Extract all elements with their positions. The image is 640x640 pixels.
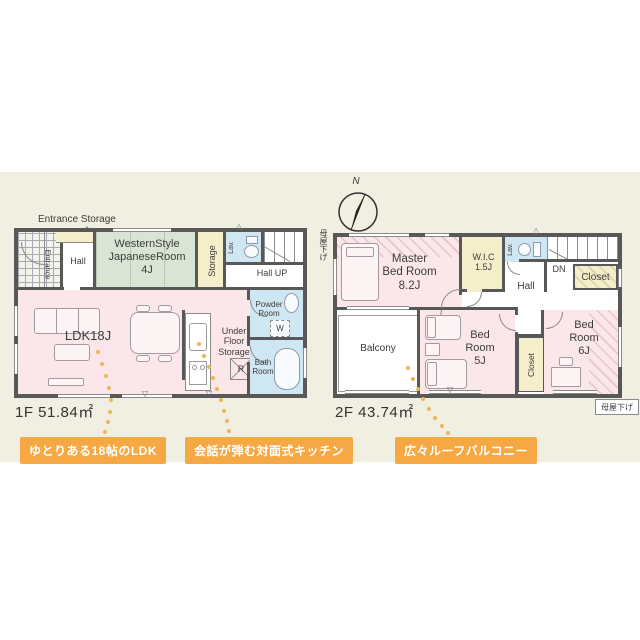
desk-icon bbox=[425, 343, 440, 356]
connector-dot bbox=[104, 374, 108, 378]
connector-dot bbox=[109, 398, 113, 402]
japanese-room-label: WesternStyle JapaneseRoom 4J bbox=[100, 238, 194, 276]
connector-dot bbox=[416, 387, 420, 391]
wic-line2: 1.5J bbox=[464, 262, 503, 272]
window bbox=[14, 306, 18, 336]
window bbox=[113, 228, 171, 232]
coffee-table-icon bbox=[54, 344, 90, 361]
bed6-line3: 6J bbox=[559, 345, 609, 358]
dn-label: DN bbox=[548, 264, 570, 274]
annotation-balcony: 広々ルーフバルコニー bbox=[395, 437, 537, 464]
toilet2-tank-icon bbox=[533, 242, 541, 257]
vent-marker: △ bbox=[236, 223, 242, 231]
toilet1-bowl-icon bbox=[244, 245, 259, 258]
connector-dot bbox=[197, 342, 201, 346]
closet-upper: Closet bbox=[573, 264, 618, 290]
hall-up-label: Hall UP bbox=[244, 268, 300, 278]
wall bbox=[459, 237, 462, 295]
compass-icon bbox=[337, 188, 379, 234]
window bbox=[429, 390, 481, 394]
window bbox=[349, 233, 409, 237]
floor2-area-label: 2F 43.74㎡ bbox=[335, 401, 414, 422]
connector-dot bbox=[427, 407, 431, 411]
toilet1-tank-icon bbox=[246, 236, 258, 244]
master-line3: 8.2J bbox=[367, 280, 452, 293]
connector-dot bbox=[103, 430, 107, 434]
japanese-room-line2: JapaneseRoom bbox=[100, 251, 194, 264]
wic-door-arc bbox=[467, 292, 482, 307]
window bbox=[14, 344, 18, 374]
window bbox=[58, 394, 110, 398]
japanese-room-line3: 4J bbox=[100, 264, 194, 277]
annotation-kitchen: 会話が弾む対面式キッチン bbox=[185, 437, 353, 464]
connector-dot bbox=[219, 398, 223, 402]
wall bbox=[247, 290, 250, 300]
refrigerator-label: R bbox=[238, 364, 245, 374]
wic-label: W.I.C 1.5J bbox=[464, 252, 503, 273]
floorplan-canvas: Entrance Storage Entrance Hall WesternSt… bbox=[0, 0, 640, 640]
wall bbox=[195, 232, 198, 287]
wall bbox=[482, 289, 505, 292]
tv-board-icon bbox=[48, 378, 84, 386]
bath-line2: Room bbox=[250, 367, 276, 376]
powder-line1: Powder bbox=[251, 300, 287, 309]
hall2-label: Hall bbox=[509, 281, 543, 293]
wall bbox=[226, 262, 303, 265]
connector-dot bbox=[207, 365, 211, 369]
wic-line1: W.I.C bbox=[464, 252, 503, 262]
entrance-label: Entrance bbox=[42, 240, 54, 288]
vent-marker: ▽ bbox=[142, 390, 148, 398]
bed6-line2: Room bbox=[559, 332, 609, 345]
bed5-line1: Bed bbox=[457, 329, 503, 342]
wall bbox=[541, 310, 544, 337]
wall bbox=[223, 232, 226, 287]
connector-dot bbox=[225, 419, 229, 423]
hall1-label: Hall bbox=[62, 256, 94, 266]
wall bbox=[519, 259, 547, 262]
wall bbox=[93, 232, 96, 287]
moya-sage-right-label: 母屋下げ bbox=[595, 399, 639, 415]
connector-dot bbox=[106, 420, 110, 424]
bathtub-icon bbox=[274, 348, 300, 390]
connector-dot bbox=[211, 376, 215, 380]
window bbox=[345, 390, 409, 394]
kitchen-stove-icon bbox=[189, 361, 207, 385]
connector-dot bbox=[108, 410, 112, 414]
dining-table-icon bbox=[130, 312, 180, 354]
connector-dot bbox=[227, 429, 231, 433]
wall bbox=[547, 259, 618, 262]
vent-marker: ▽ bbox=[206, 390, 212, 398]
ldk-label: LDK18J bbox=[46, 328, 130, 343]
lav2-door-arc bbox=[507, 262, 520, 275]
burner-icon bbox=[192, 365, 197, 370]
balcony-label: Balcony bbox=[345, 343, 411, 355]
wall bbox=[443, 307, 518, 310]
bed5-line2: Room bbox=[457, 342, 503, 355]
master-bedroom-label: Master Bed Room 8.2J bbox=[367, 253, 452, 293]
lav2-label-text: Lav. bbox=[507, 243, 514, 256]
connector-dot bbox=[96, 350, 100, 354]
vent-marker: △ bbox=[533, 227, 539, 235]
connector-dot bbox=[222, 409, 226, 413]
moya-sage-left-label: 母屋下げ bbox=[317, 224, 330, 266]
chair-icon bbox=[136, 355, 150, 362]
storage1-label: Storage bbox=[207, 245, 217, 277]
powder-room-label: Powder Room bbox=[251, 300, 287, 319]
wall bbox=[502, 237, 505, 292]
desk-icon bbox=[551, 367, 581, 387]
japanese-room-line1: WesternStyle bbox=[100, 238, 194, 251]
bedroom5-label: Bed Room 5J bbox=[457, 329, 503, 367]
vent-marker: ▽ bbox=[447, 386, 453, 394]
connector-dot bbox=[411, 377, 415, 381]
master-line2: Bed Room bbox=[367, 266, 452, 279]
balcony-sliding-window bbox=[347, 306, 409, 310]
closet-upper-label: Closet bbox=[581, 272, 609, 283]
wall bbox=[261, 232, 264, 262]
window bbox=[553, 390, 597, 394]
kitchen-sink-icon bbox=[189, 323, 207, 351]
bedroom6-label: Bed Room 6J bbox=[559, 319, 609, 357]
bath-room-label: Bath Room bbox=[250, 358, 276, 377]
lav2-label: Lav. bbox=[505, 237, 516, 262]
connector-dot bbox=[107, 386, 111, 390]
floor1-plan: Entrance Hall WesternStyle JapaneseRoom … bbox=[14, 228, 307, 398]
entrance-label-text: Entrance bbox=[44, 249, 53, 279]
connector-dot bbox=[433, 416, 437, 420]
chair-icon bbox=[158, 305, 172, 312]
chair-icon bbox=[158, 355, 172, 362]
connector-dot bbox=[421, 397, 425, 401]
entrance-storage-shelf bbox=[56, 232, 96, 243]
connector-dot bbox=[202, 354, 206, 358]
window bbox=[333, 259, 337, 295]
floor1-area-label: 1F 51.84㎡ bbox=[15, 401, 94, 422]
pillow-icon bbox=[427, 317, 436, 338]
powder-line2: Room bbox=[251, 309, 287, 318]
compass-north-label: N bbox=[348, 176, 364, 188]
window bbox=[618, 327, 622, 367]
window bbox=[425, 233, 449, 237]
washer-label: W bbox=[276, 324, 284, 333]
connector-dot bbox=[100, 362, 104, 366]
annotation-ldk: ゆとりある18帖のLDK bbox=[20, 437, 166, 464]
chair-icon bbox=[136, 305, 150, 312]
closet-lower: Closet bbox=[518, 337, 544, 392]
wall bbox=[247, 316, 250, 346]
window bbox=[303, 348, 307, 378]
entrance-storage-label: Entrance Storage bbox=[38, 214, 118, 226]
lav1-label: Lav. bbox=[226, 232, 237, 262]
bath-line1: Bath bbox=[250, 358, 276, 367]
wall bbox=[60, 243, 63, 287]
floor2-plan: Master Bed Room 8.2J W.I.C 1.5J Lav. DN … bbox=[333, 233, 622, 398]
washer-box: W bbox=[270, 320, 290, 337]
window bbox=[618, 269, 622, 287]
bed5-line3: 5J bbox=[457, 355, 503, 368]
connector-dot bbox=[406, 366, 410, 370]
pillow-icon bbox=[427, 362, 437, 386]
closet-lower-label: Closet bbox=[526, 352, 536, 376]
toilet2-bowl-icon bbox=[518, 243, 531, 256]
burner-icon bbox=[200, 365, 205, 370]
lav1-label-text: Lav. bbox=[228, 241, 235, 254]
chair-icon bbox=[559, 357, 573, 366]
wall bbox=[250, 337, 303, 340]
moya-sage-right-text: 母屋下げ bbox=[601, 402, 633, 413]
connector-dot bbox=[215, 387, 219, 391]
wall bbox=[544, 262, 547, 292]
moya-sage-left-text: 母屋下げ bbox=[318, 229, 329, 261]
master-line1: Master bbox=[367, 253, 452, 266]
storage1-room: Storage bbox=[198, 232, 226, 290]
bed6-line1: Bed bbox=[559, 319, 609, 332]
connector-dot bbox=[440, 424, 444, 428]
connector-dot bbox=[446, 431, 450, 435]
